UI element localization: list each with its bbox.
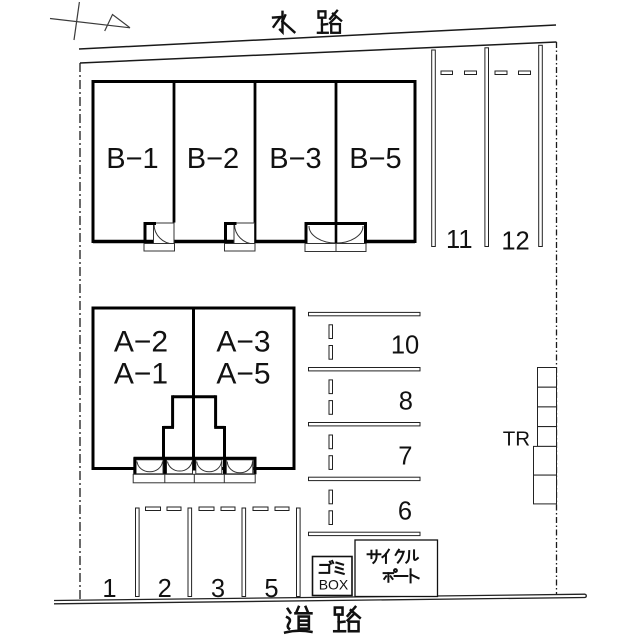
svg-text:5: 5 bbox=[264, 575, 278, 603]
svg-text:6: 6 bbox=[398, 498, 412, 526]
svg-text:B−1: B−1 bbox=[106, 143, 158, 175]
svg-text:11: 11 bbox=[446, 226, 472, 254]
svg-text:3: 3 bbox=[211, 575, 225, 603]
svg-text:A−3: A−3 bbox=[216, 326, 270, 359]
svg-text:B−3: B−3 bbox=[269, 143, 321, 175]
svg-text:12: 12 bbox=[501, 228, 529, 256]
svg-text:B−5: B−5 bbox=[349, 143, 401, 175]
svg-text:BOX: BOX bbox=[319, 577, 349, 593]
svg-text:7: 7 bbox=[398, 443, 412, 471]
svg-text:2: 2 bbox=[158, 575, 172, 603]
svg-text:10: 10 bbox=[391, 332, 419, 360]
svg-text:8: 8 bbox=[399, 388, 413, 416]
svg-text:A−5: A−5 bbox=[216, 358, 270, 391]
svg-text:TR: TR bbox=[503, 428, 530, 451]
svg-text:1: 1 bbox=[102, 575, 116, 603]
svg-text:A−1: A−1 bbox=[114, 358, 168, 391]
svg-text:A−2: A−2 bbox=[114, 326, 168, 359]
svg-text:B−2: B−2 bbox=[187, 143, 239, 175]
